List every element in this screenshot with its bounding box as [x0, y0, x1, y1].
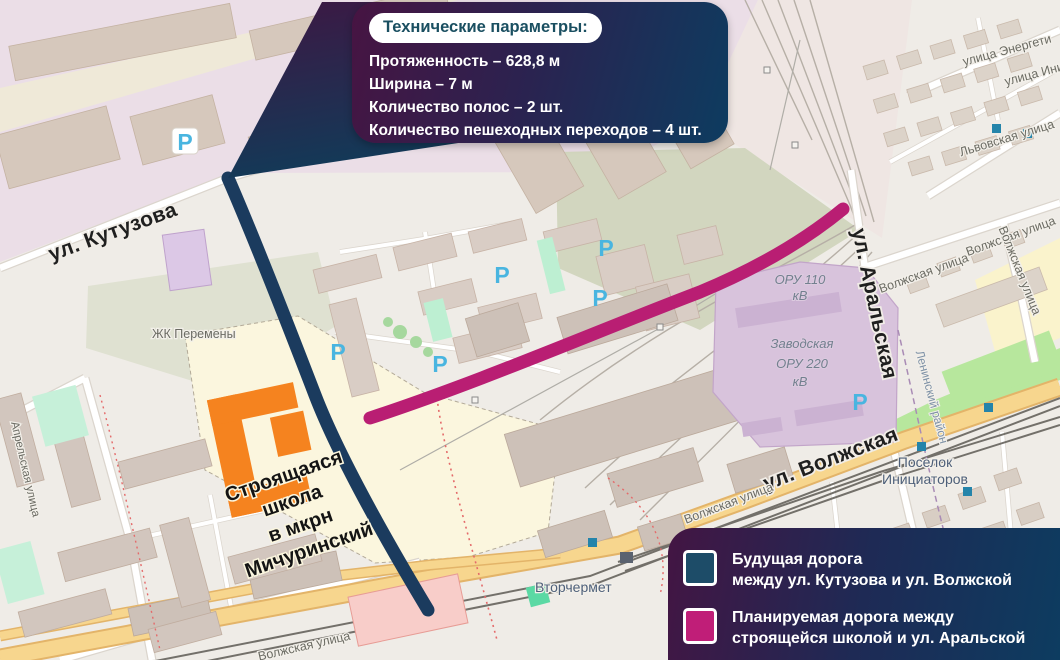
future-road-label: Будущая дорога между ул. Кутузова и ул. … [732, 549, 1012, 591]
label-zavodskaya-3: кВ [793, 374, 808, 389]
parking-icon: P [598, 235, 613, 261]
label-zavodskaya-2: ОРУ 220 [776, 356, 829, 371]
parking-icon: P [494, 262, 509, 288]
parking-icon: P [177, 129, 192, 155]
legend-item-future-road: Будущая дорога между ул. Кутузова и ул. … [683, 549, 1060, 591]
param-length: Протяженность – 628,8 м [369, 50, 716, 73]
label-oru110-2: кВ [793, 288, 808, 303]
legend-item-planned-road: Планируемая дорога между строящейся школ… [683, 607, 1060, 649]
parking-icon: P [432, 351, 447, 377]
callout-body: Протяженность – 628,8 м Ширина – 7 м Кол… [369, 50, 716, 142]
building-purple-block [162, 229, 211, 290]
map-legend: Будущая дорога между ул. Кутузова и ул. … [668, 528, 1060, 660]
label-vtorchermet: Вторчермет [535, 579, 612, 595]
label-oru110-1: ОРУ 110 [775, 272, 827, 287]
parking-icon: P [592, 285, 607, 311]
param-lanes: Количество полос – 2 шт. [369, 96, 716, 119]
label-poselok-2: Инициаторов [882, 471, 968, 487]
label-zhk-peremeny: ЖК Перемены [152, 327, 236, 341]
label-zavodskaya-1: Заводская [771, 336, 834, 351]
callout-title: Технические параметры: [369, 13, 602, 43]
planned-road-swatch [683, 608, 717, 644]
param-crossings: Количество пешеходных переходов – 4 шт. [369, 119, 716, 142]
infographic-page: { "callout": { "title": "Технические пар… [0, 0, 1060, 660]
future-road-swatch [683, 550, 717, 586]
label-poselok-1: Поселок [898, 454, 953, 470]
parking-icon: P [852, 389, 867, 415]
technical-params-callout: Технические параметры: Протяженность – 6… [352, 2, 728, 143]
param-width: Ширина – 7 м [369, 73, 716, 96]
planned-road-label: Планируемая дорога между строящейся школ… [732, 607, 1025, 649]
parking-icon: P [330, 339, 345, 365]
